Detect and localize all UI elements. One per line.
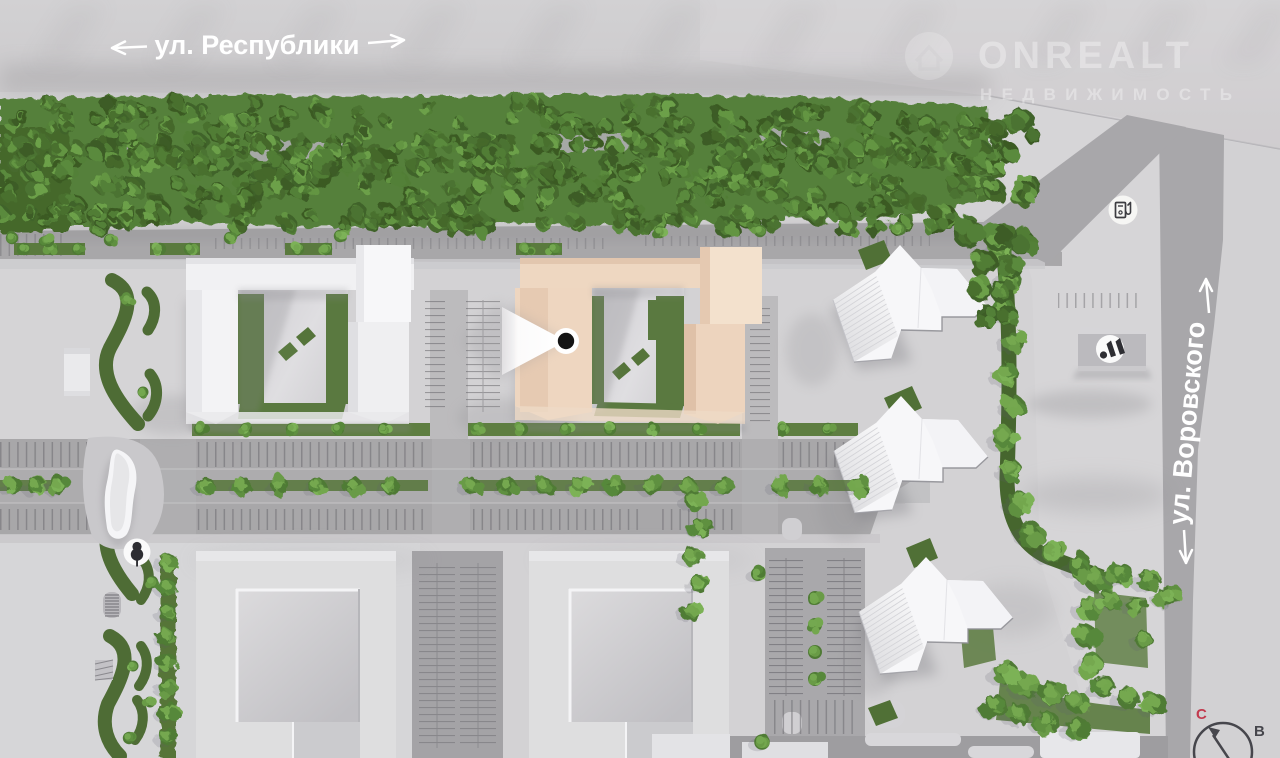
svg-text:ул. Республики: ул. Республики	[154, 30, 359, 60]
svg-text:В: В	[1254, 723, 1265, 740]
svg-text:НЕДВИЖИМОСТЬ: НЕДВИЖИМОСТЬ	[980, 85, 1241, 104]
svg-text:С: С	[1196, 706, 1207, 723]
svg-text:ONREALT: ONREALT	[978, 35, 1194, 77]
